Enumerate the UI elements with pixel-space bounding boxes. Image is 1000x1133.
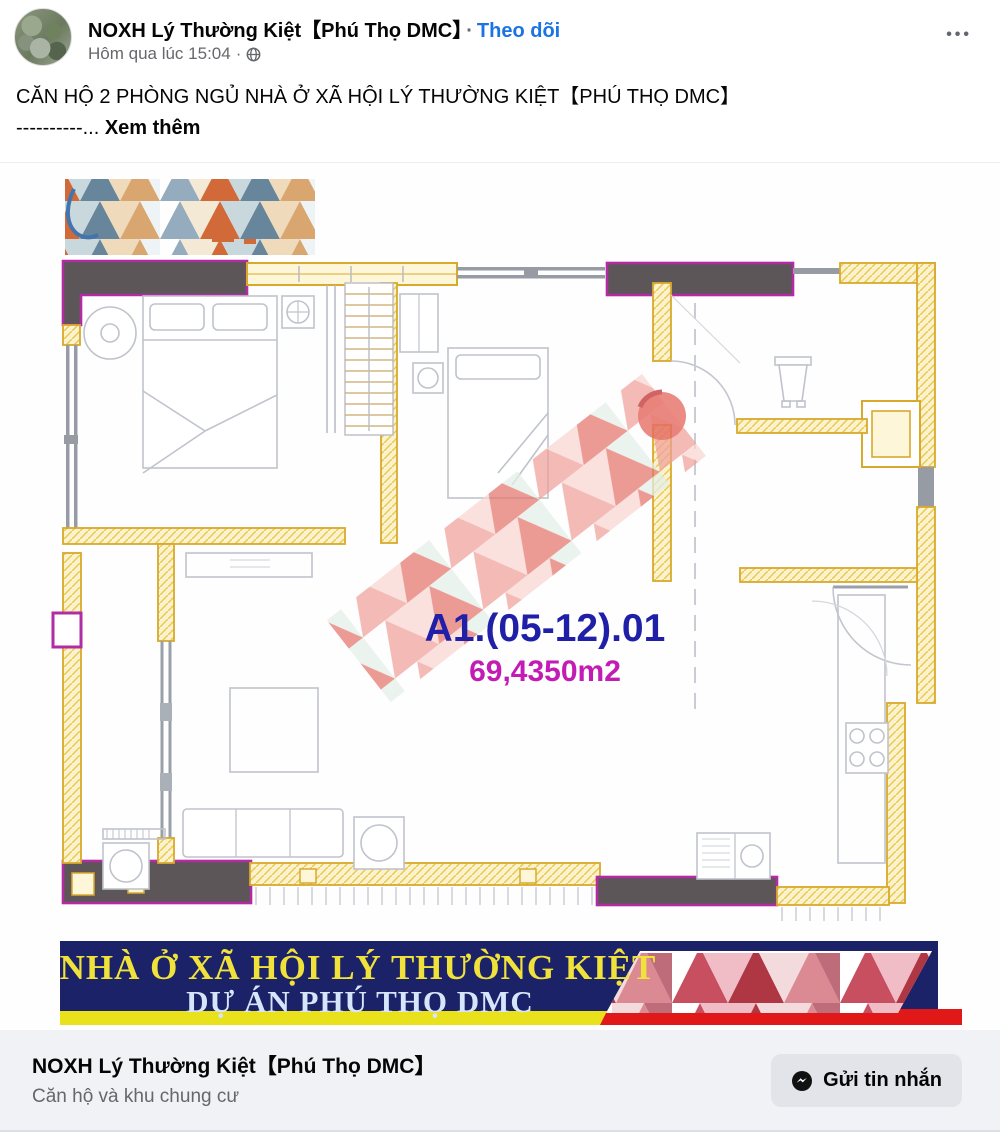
project-banner: NHÀ Ở XÃ HỘI LÝ THƯỜNG KIỆT DỰ ÁN PHÚ TH… — [60, 941, 962, 1025]
unit-code-label: A1.(05-12).01 — [425, 607, 666, 650]
post-text-dashes: ----------... — [16, 117, 99, 139]
send-message-label: Gửi tin nhắn — [823, 1069, 942, 1092]
page-avatar[interactable] — [14, 8, 72, 66]
send-message-button[interactable]: Gửi tin nhắn — [771, 1054, 962, 1107]
post-text-line2: ----------... Xem thêm — [16, 113, 984, 144]
post-text: CĂN HỘ 2 PHÒNG NGỦ NHÀ Ở XÃ HỘI LÝ THƯỜN… — [16, 82, 984, 144]
timestamp-row: Hôm qua lúc 15:04 · — [88, 44, 261, 64]
post-image-floorplan[interactable]: A1.(05-12).01 69,4350m2 NHÀ Ở XÃ HỘI LÝ … — [0, 162, 1000, 1031]
post-text-line1: CĂN HỘ 2 PHÒNG NGỦ NHÀ Ở XÃ HỘI LÝ THƯỜN… — [16, 82, 984, 113]
banner-line2: DỰ ÁN PHÚ THỌ DMC — [186, 984, 534, 1019]
watermark-logo-topleft — [65, 179, 315, 255]
post-header: NOXH Lý Thường Kiệt【Phú Thọ DMC】·Theo dõ… — [0, 0, 1000, 78]
follow-link[interactable]: Theo dõi — [477, 20, 560, 42]
watermark-logo-banner — [612, 953, 942, 1013]
card-page-category: Căn hộ và khu chung cư — [32, 1086, 239, 1108]
floorplan-drawing: A1.(05-12).01 69,4350m2 NHÀ Ở XÃ HỘI LÝ … — [0, 163, 1000, 1031]
separator-dot: · — [236, 44, 242, 64]
card-page-title: NOXH Lý Thường Kiệt【Phú Thọ DMC】 — [32, 1050, 435, 1080]
post-timestamp[interactable]: Hôm qua lúc 15:04 — [88, 44, 231, 64]
separator-dot: · — [466, 20, 473, 42]
unit-area-label: 69,4350m2 — [469, 655, 621, 688]
page-name-row: NOXH Lý Thường Kiệt【Phú Thọ DMC】·Theo dõ… — [88, 14, 560, 43]
globe-icon — [246, 47, 261, 62]
messenger-icon — [791, 1070, 813, 1092]
ellipsis-icon[interactable]: ••• — [946, 26, 972, 44]
facebook-post: NOXH Lý Thường Kiệt【Phú Thọ DMC】·Theo dõ… — [0, 0, 1000, 1133]
page-link-card[interactable]: NOXH Lý Thường Kiệt【Phú Thọ DMC】 Căn hộ … — [0, 1030, 1000, 1132]
page-name-link[interactable]: NOXH Lý Thường Kiệt【Phú Thọ DMC】 — [88, 20, 462, 42]
see-more-link[interactable]: Xem thêm — [105, 117, 201, 139]
banner-line1: NHÀ Ở XÃ HỘI LÝ THƯỜNG KIỆT — [60, 947, 657, 987]
